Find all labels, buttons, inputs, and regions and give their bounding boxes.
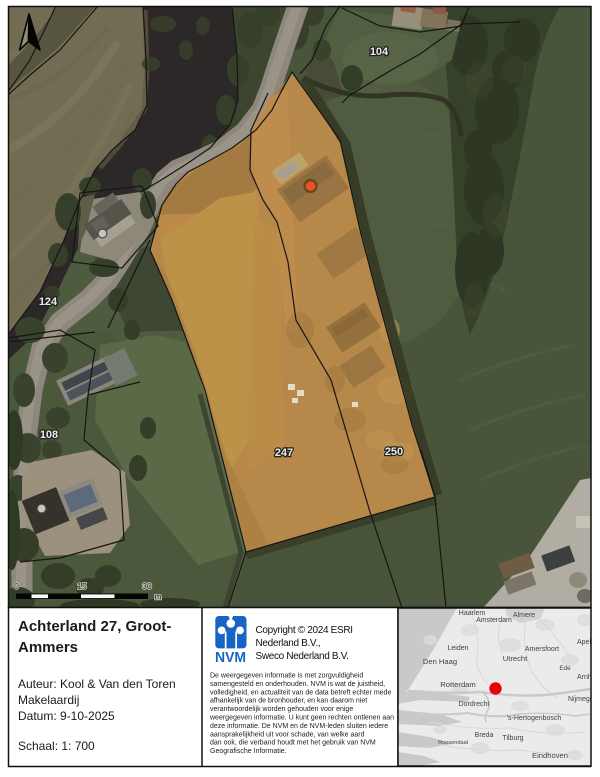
svg-text:Schaal: 1: 700: Schaal: 1: 700	[18, 739, 95, 753]
svg-text:Leiden: Leiden	[447, 645, 468, 652]
svg-text:Eindhoven: Eindhoven	[532, 751, 568, 760]
svg-text:NVM: NVM	[215, 649, 246, 666]
svg-text:Ammers: Ammers	[18, 639, 78, 656]
svg-text:Roosendaal: Roosendaal	[438, 740, 468, 746]
svg-text:Apeldoorn: Apeldoorn	[577, 639, 600, 646]
svg-text:Arnhem: Arnhem	[577, 674, 600, 681]
svg-text:Sweco Nederland B.V.: Sweco Nederland B.V.	[256, 651, 349, 662]
svg-text:De weergegeven informatie is m: De weergegeven informatie is met zorgvul…	[210, 673, 363, 680]
svg-text:weergegeven informatie. U kunt: weergegeven informatie. U kunt geen rech…	[209, 715, 394, 722]
svg-text:Makelaardij: Makelaardij	[18, 693, 79, 707]
svg-text:Nederland B.V.,: Nederland B.V.,	[256, 638, 321, 649]
svg-text:Rotterdam: Rotterdam	[440, 680, 475, 689]
svg-text:Geografische Informatie.: Geografische Informatie.	[210, 748, 287, 755]
svg-text:Breda: Breda	[475, 732, 494, 739]
svg-text:Tilburg: Tilburg	[502, 735, 523, 742]
svg-text:Auteur: Kool & Van den Toren: Auteur: Kool & Van den Toren	[18, 677, 176, 691]
svg-text:Achterland 27, Groot-: Achterland 27, Groot-	[18, 618, 171, 635]
svg-text:Amersfoort: Amersfoort	[525, 646, 559, 653]
svg-text:aansprakelijkheid uit voor sch: aansprakelijkheid uit voor schade, van w…	[210, 731, 365, 738]
svg-text:'s-Hertogenbosch: 's-Hertogenbosch	[507, 715, 562, 722]
svg-text:Dordrecht: Dordrecht	[459, 701, 490, 708]
svg-text:Den Haag: Den Haag	[423, 657, 457, 666]
svg-text:Utrecht: Utrecht	[503, 654, 528, 663]
svg-text:Amsterdam: Amsterdam	[476, 617, 512, 624]
svg-text:verantwoordelijk worden gehoud: verantwoordelijk worden gehouden voor en…	[210, 706, 353, 713]
svg-text:Haarlem: Haarlem	[459, 610, 486, 617]
svg-text:volledigheid, en actualiteit v: volledigheid, en actualiteit van de data…	[210, 689, 391, 696]
svg-text:deze informatie. De NVM en de: deze informatie. De NVM en de NVM-leden …	[210, 723, 388, 730]
svg-text:Datum: 9-10-2025: Datum: 9-10-2025	[18, 709, 115, 723]
svg-text:Copyright © 2024 ESRI: Copyright © 2024 ESRI	[256, 625, 353, 636]
svg-text:afhankelijk van de bronhouder,: afhankelijk van de bronhouder, en kan da…	[210, 698, 367, 705]
svg-text:Nijmegen: Nijmegen	[568, 696, 598, 703]
svg-text:Ede: Ede	[559, 665, 571, 672]
svg-text:dan ook, die verband houdt met: dan ook, die verband houdt met het gebru…	[210, 740, 376, 747]
svg-text:samengesteld en onderhouden. N: samengesteld en onderhouden. NVM is wat …	[210, 681, 385, 688]
svg-text:Almere: Almere	[513, 612, 535, 619]
